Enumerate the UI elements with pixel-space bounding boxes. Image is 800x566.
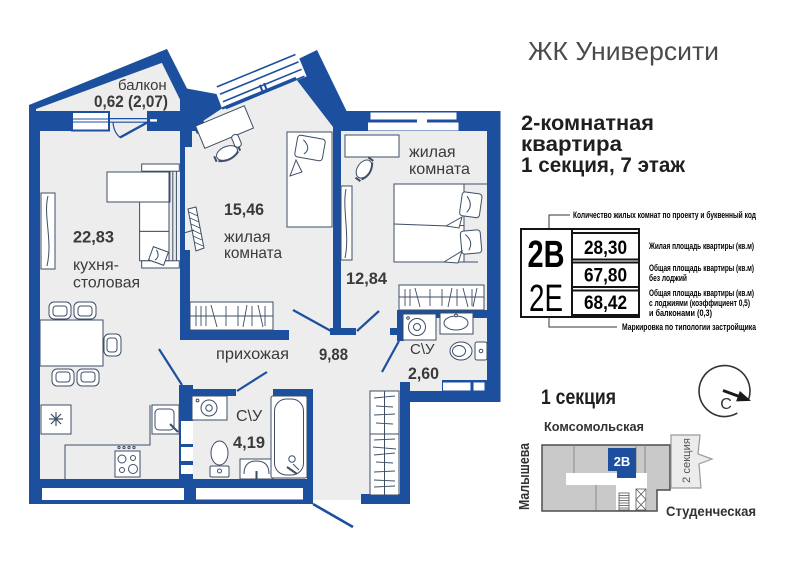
svg-text:без лоджий: без лоджий (649, 273, 687, 283)
svg-text:столовая: столовая (73, 275, 140, 292)
svg-text:1 секция: 1 секция (541, 385, 616, 409)
svg-text:жилая: жилая (409, 144, 456, 161)
svg-text:Студенческая: Студенческая (666, 504, 756, 519)
svg-text:Комсомольская: Комсомольская (544, 419, 644, 434)
svg-text:и балконами (0,3): и балконами (0,3) (649, 308, 712, 318)
svg-text:комната: комната (224, 245, 282, 262)
svg-text:Общая площадь квартиры (кв.м): Общая площадь квартиры (кв.м) (649, 263, 754, 273)
svg-text:22,83: 22,83 (73, 228, 114, 247)
svg-text:2Е: 2Е (529, 278, 563, 320)
svg-text:2,60: 2,60 (408, 364, 439, 383)
svg-text:прихожая: прихожая (216, 346, 289, 363)
svg-text:67,80: 67,80 (584, 266, 627, 287)
svg-text:Маркировка по типологии застро: Маркировка по типологии застройщика (622, 322, 757, 332)
svg-text:с лоджиями (коэффициент 0,5): с лоджиями (коэффициент 0,5) (649, 298, 750, 308)
svg-text:12,84: 12,84 (346, 269, 388, 288)
svg-text:С\У: С\У (236, 408, 263, 425)
svg-text:9,88: 9,88 (319, 345, 348, 364)
svg-text:2 секция: 2 секция (681, 438, 693, 483)
svg-text:4,19: 4,19 (233, 433, 265, 452)
svg-text:15,46: 15,46 (224, 200, 264, 219)
svg-text:1 секция, 7 этаж: 1 секция, 7 этаж (521, 153, 686, 177)
svg-text:Общая площадь квартиры (кв.м): Общая площадь квартиры (кв.м) (649, 288, 754, 298)
svg-text:0,62 (2,07): 0,62 (2,07) (94, 92, 168, 111)
svg-text:Малышева: Малышева (516, 442, 533, 510)
svg-text:28,30: 28,30 (584, 238, 627, 259)
svg-text:комната: комната (409, 161, 470, 178)
svg-text:2В: 2В (614, 454, 631, 469)
svg-text:68,42: 68,42 (584, 293, 627, 314)
svg-text:2В: 2В (528, 234, 565, 276)
svg-text:Жилая площадь квартиры (кв.м): Жилая площадь квартиры (кв.м) (648, 241, 754, 251)
svg-text:ЖК Университи: ЖК Университи (528, 36, 719, 66)
svg-text:кухня-: кухня- (73, 257, 119, 274)
svg-text:С\У: С\У (410, 341, 435, 358)
svg-text:жилая: жилая (224, 229, 271, 246)
svg-text:Количество жилых комнат по про: Количество жилых комнат по проекту и бук… (573, 210, 756, 220)
svg-text:С: С (720, 396, 732, 413)
